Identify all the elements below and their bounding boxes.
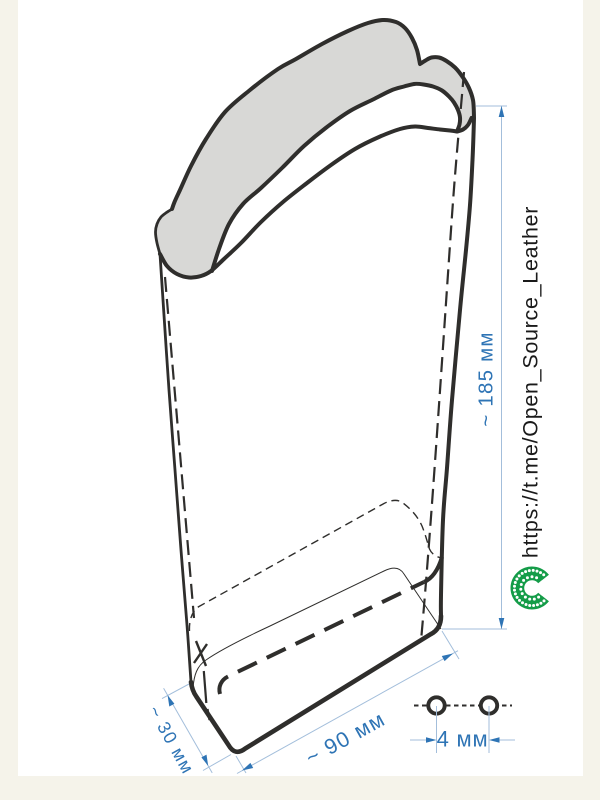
svg-text:https://t.me/Open_Source_Leath: https://t.me/Open_Source_Leather: [519, 206, 543, 558]
svg-text:4 мм: 4 мм: [437, 727, 489, 752]
svg-text:~ 185 мм: ~ 185 мм: [475, 331, 498, 426]
